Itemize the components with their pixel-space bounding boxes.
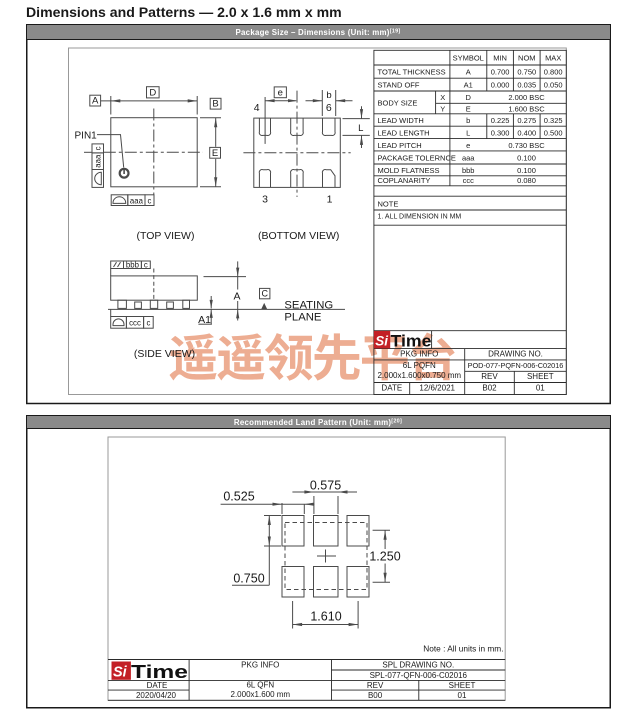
svg-text:DATE: DATE xyxy=(147,681,168,690)
svg-text:Package Size – Dimensions (Uni: Package Size – Dimensions (Unit: mm)[19] xyxy=(236,28,401,37)
svg-text:4: 4 xyxy=(254,102,260,114)
svg-text:PKG INFO: PKG INFO xyxy=(241,660,279,669)
svg-text:aaa: aaa xyxy=(130,196,144,205)
svg-text:b: b xyxy=(466,116,470,125)
svg-text:B00: B00 xyxy=(368,691,383,700)
svg-text:MAX: MAX xyxy=(545,54,561,63)
svg-text:0.800: 0.800 xyxy=(544,68,563,77)
svg-text:PLANE: PLANE xyxy=(284,311,322,323)
svg-text:c: c xyxy=(146,319,150,328)
svg-text:E: E xyxy=(212,148,218,159)
svg-text:A1: A1 xyxy=(198,314,211,326)
svg-text:0.525: 0.525 xyxy=(223,490,254,504)
svg-text:MOLD FLATNESS: MOLD FLATNESS xyxy=(378,166,440,175)
svg-text:POD-077-PQFN-006-C02016: POD-077-PQFN-006-C02016 xyxy=(468,361,564,370)
svg-text:0.325: 0.325 xyxy=(544,116,563,125)
svg-text:0.100: 0.100 xyxy=(517,166,536,175)
svg-text:NOM: NOM xyxy=(518,54,536,63)
svg-text:PKG INFO: PKG INFO xyxy=(400,350,438,359)
svg-text:0.700: 0.700 xyxy=(491,68,510,77)
svg-text:c: c xyxy=(148,196,152,205)
svg-text:REV: REV xyxy=(367,681,384,690)
svg-text:(TOP VIEW): (TOP VIEW) xyxy=(137,230,195,242)
svg-text:6L QFN: 6L QFN xyxy=(246,681,274,690)
svg-text:NOTE: NOTE xyxy=(378,200,399,209)
svg-text:0.400: 0.400 xyxy=(517,128,536,137)
svg-text:PIN1: PIN1 xyxy=(75,130,98,141)
svg-text:B02: B02 xyxy=(482,384,497,393)
svg-text:LEAD PITCH: LEAD PITCH xyxy=(378,141,422,150)
svg-text:0.080: 0.080 xyxy=(517,176,536,185)
svg-text:B: B xyxy=(212,99,218,110)
svg-text:ccc: ccc xyxy=(129,319,141,328)
svg-text:DATE: DATE xyxy=(381,384,402,393)
svg-text:Dimensions and Patterns — 2.0: Dimensions and Patterns — 2.0 x 1.6 mm x… xyxy=(26,4,342,20)
svg-text:6L PQFN: 6L PQFN xyxy=(403,361,436,370)
svg-text:2020/04/20: 2020/04/20 xyxy=(136,691,177,700)
svg-text:c: c xyxy=(144,260,148,269)
svg-text:bbb: bbb xyxy=(126,260,140,269)
svg-text:SHEET: SHEET xyxy=(527,372,554,381)
svg-text:MIN: MIN xyxy=(493,54,507,63)
svg-text:0.275: 0.275 xyxy=(517,116,536,125)
svg-text:0.050: 0.050 xyxy=(544,81,563,90)
svg-text:SHEET: SHEET xyxy=(449,681,476,690)
svg-text:2.000 BSC: 2.000 BSC xyxy=(508,93,545,102)
svg-text:TOTAL THICKNESS: TOTAL THICKNESS xyxy=(378,68,446,77)
svg-text:aaa: aaa xyxy=(94,154,103,168)
svg-text:1.610: 1.610 xyxy=(310,610,341,624)
svg-text:0.100: 0.100 xyxy=(517,154,536,163)
svg-text:01: 01 xyxy=(458,691,467,700)
svg-text:6: 6 xyxy=(326,102,332,114)
svg-text:0.750: 0.750 xyxy=(233,572,264,586)
svg-text:0.750: 0.750 xyxy=(517,68,536,77)
svg-text:1: 1 xyxy=(327,194,333,206)
svg-text:SEATING: SEATING xyxy=(284,300,333,312)
svg-text:LEAD LENGTH: LEAD LENGTH xyxy=(378,128,430,137)
svg-text:0.300: 0.300 xyxy=(491,128,510,137)
svg-text:A: A xyxy=(466,68,471,77)
svg-text:2.000x1.600x0.750 mm: 2.000x1.600x0.750 mm xyxy=(377,371,461,380)
svg-text:b: b xyxy=(326,90,331,101)
svg-text:0.000: 0.000 xyxy=(491,81,510,90)
svg-text:(SIDE VIEW): (SIDE VIEW) xyxy=(134,348,195,360)
svg-text:1.250: 1.250 xyxy=(369,550,400,564)
svg-text:c: c xyxy=(94,146,103,150)
svg-text:SYMBOL: SYMBOL xyxy=(453,54,484,63)
svg-text:3: 3 xyxy=(262,194,268,206)
svg-text:1. ALL DIMENSION IN MM: 1. ALL DIMENSION IN MM xyxy=(378,214,462,221)
svg-text:aaa: aaa xyxy=(462,154,475,163)
svg-text:0.730 BSC: 0.730 BSC xyxy=(508,141,545,150)
svg-text:01: 01 xyxy=(536,384,545,393)
svg-text:(BOTTOM VIEW): (BOTTOM VIEW) xyxy=(258,230,339,242)
svg-text:D: D xyxy=(149,88,156,99)
svg-text:Si: Si xyxy=(375,333,388,348)
svg-text:Y: Y xyxy=(440,105,445,114)
svg-text:E: E xyxy=(466,105,471,114)
svg-text:L: L xyxy=(358,123,363,134)
svg-text:L: L xyxy=(466,128,470,137)
svg-text:12/6/2021: 12/6/2021 xyxy=(419,384,455,393)
svg-text:Note : All units in mm.: Note : All units in mm. xyxy=(423,644,503,654)
svg-text:0.575: 0.575 xyxy=(310,478,341,492)
svg-text:BODY SIZE: BODY SIZE xyxy=(378,99,418,108)
svg-text:X: X xyxy=(440,93,445,102)
svg-text:ccc: ccc xyxy=(463,176,475,185)
svg-text:1.600 BSC: 1.600 BSC xyxy=(508,105,545,114)
svg-text:Si: Si xyxy=(113,665,128,681)
svg-text:bbb: bbb xyxy=(462,166,475,175)
svg-text:Time: Time xyxy=(131,661,188,682)
svg-text:C: C xyxy=(261,289,268,299)
svg-text:0.035: 0.035 xyxy=(517,81,536,90)
svg-text:Time: Time xyxy=(391,333,432,351)
svg-text:e: e xyxy=(278,88,283,99)
svg-text:SPL-077-QFN-006-C02016: SPL-077-QFN-006-C02016 xyxy=(370,671,468,680)
svg-text:STAND OFF: STAND OFF xyxy=(378,81,420,90)
svg-text:A: A xyxy=(92,96,99,107)
svg-text:0.225: 0.225 xyxy=(491,116,510,125)
svg-text:0.500: 0.500 xyxy=(544,128,563,137)
svg-text:DRAWING NO.: DRAWING NO. xyxy=(488,350,543,359)
svg-text:COPLANARITY: COPLANARITY xyxy=(378,176,431,185)
svg-text:SPL DRAWING NO.: SPL DRAWING NO. xyxy=(382,660,454,669)
svg-text:A1: A1 xyxy=(464,81,473,90)
svg-text:REV: REV xyxy=(481,372,498,381)
svg-text:Recommended Land Pattern (Unit: Recommended Land Pattern (Unit: mm)[20] xyxy=(234,418,402,427)
svg-text:D: D xyxy=(465,93,471,102)
svg-text:PACKAGE TOLERNCE: PACKAGE TOLERNCE xyxy=(378,154,456,163)
svg-text:LEAD WIDTH: LEAD WIDTH xyxy=(378,116,424,125)
svg-text:A: A xyxy=(233,290,240,302)
svg-text:e: e xyxy=(466,141,470,150)
svg-text:2.000x1.600 mm: 2.000x1.600 mm xyxy=(231,690,291,699)
